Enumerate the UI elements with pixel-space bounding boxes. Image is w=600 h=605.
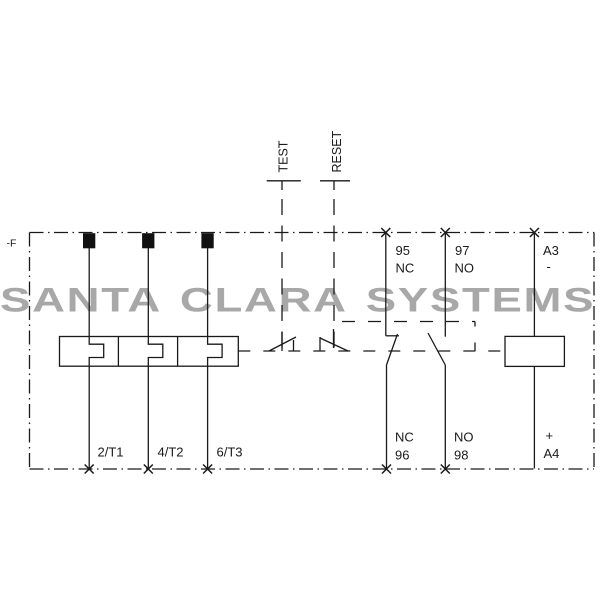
svg-text:2/T1: 2/T1 [98,445,124,460]
svg-text:97: 97 [455,243,469,258]
svg-text:-F: -F [7,238,17,250]
svg-text:96: 96 [395,448,409,463]
svg-text:NC: NC [396,261,415,276]
svg-text:NC: NC [395,430,414,445]
svg-text:4/T2: 4/T2 [158,445,184,460]
svg-text:+: + [546,428,554,443]
svg-text:-: - [547,259,551,274]
svg-text:95: 95 [396,243,410,258]
svg-text:A3: A3 [543,243,559,258]
svg-text:NO: NO [455,261,475,276]
svg-text:RESET: RESET [330,130,344,172]
svg-text:NO: NO [454,430,474,445]
svg-text:6/T3: 6/T3 [217,445,243,460]
svg-text:TEST: TEST [277,140,291,172]
svg-text:A4: A4 [544,446,560,461]
svg-text:98: 98 [454,448,468,463]
